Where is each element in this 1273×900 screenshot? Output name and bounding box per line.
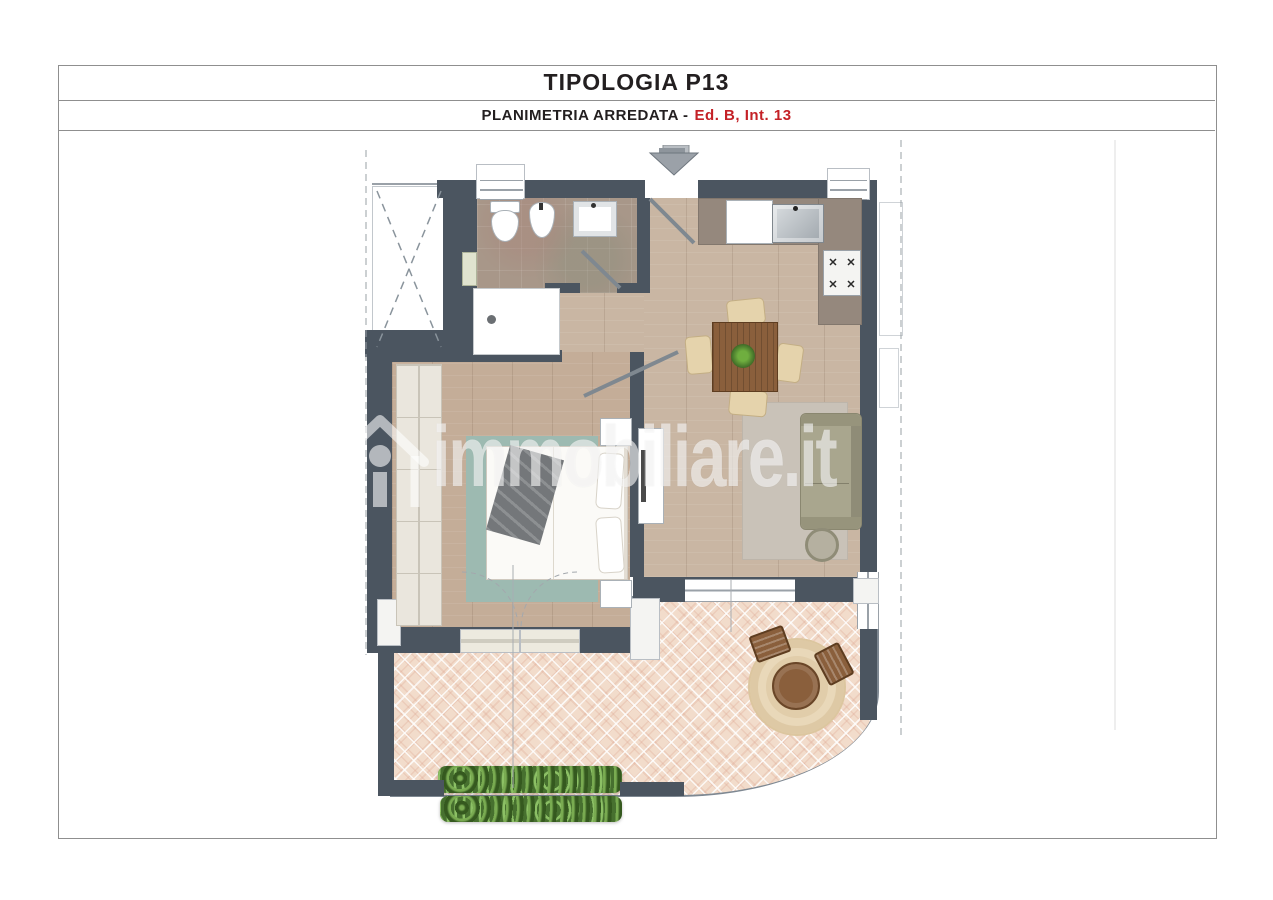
sink-tap-icon	[591, 203, 596, 208]
dining-chair	[684, 335, 713, 375]
planter-box	[440, 796, 622, 822]
burner-icon: ✕	[846, 278, 855, 291]
bedroom-french-door	[460, 629, 580, 653]
subtitle-unit: Ed. B, Int. 13	[695, 107, 792, 124]
bidet-tap-icon	[539, 203, 543, 210]
burner-icon: ✕	[846, 256, 855, 269]
wardrobe	[396, 364, 442, 626]
title-bar: TIPOLOGIA P13	[58, 65, 1215, 101]
living-french-door	[685, 579, 795, 602]
wall-terrace-bottom	[378, 780, 444, 796]
stove-burners: ✕ ✕ ✕ ✕	[824, 251, 860, 295]
hallway-floor	[558, 293, 644, 357]
burner-icon: ✕	[828, 278, 837, 291]
stairwell-door	[462, 252, 477, 286]
bed	[486, 446, 628, 580]
pillar	[853, 578, 879, 604]
sofa-cushion-line	[805, 483, 849, 484]
bathroom-window	[480, 180, 523, 200]
tv	[641, 450, 646, 502]
subtitle-label: PLANIMETRIA ARREDATA -	[481, 107, 688, 124]
nightstand	[600, 580, 632, 608]
table-plant	[731, 344, 755, 368]
sofa-back	[851, 426, 861, 517]
shower-tray	[473, 288, 560, 355]
dining-chair	[728, 388, 768, 417]
sofa-armrest	[801, 414, 861, 426]
stairwell	[372, 186, 445, 354]
burner-icon: ✕	[828, 256, 837, 269]
dining-chair	[773, 342, 804, 383]
kitchen-window	[830, 180, 867, 200]
sofa	[800, 413, 862, 530]
wall-right	[860, 198, 877, 577]
kitchen-sink	[772, 204, 824, 243]
nightstand	[600, 418, 632, 446]
terrace-coffee-table	[772, 662, 820, 710]
wall-bathroom-bottom	[617, 283, 637, 293]
page-title: TIPOLOGIA P13	[544, 69, 730, 96]
subtitle-bar: PLANIMETRIA ARREDATA - Ed. B, Int. 13	[58, 101, 1215, 131]
kitchen-cabinet	[726, 200, 773, 244]
wall-terrace-bottom	[620, 782, 684, 796]
wall-bedroom-left	[367, 352, 392, 630]
stove: ✕ ✕ ✕ ✕	[823, 250, 861, 296]
open-window-leaf	[879, 202, 903, 336]
wall-terrace-left	[378, 650, 394, 785]
bed-pillow	[595, 516, 625, 574]
pillar	[630, 598, 660, 660]
kitchen-faucet-icon	[793, 206, 798, 211]
sofa-armrest	[801, 517, 861, 529]
side-table	[805, 528, 839, 562]
shower-drain-icon	[487, 315, 496, 324]
wall-bathroom-right	[637, 198, 650, 293]
entrance-arrow-icon	[646, 145, 702, 177]
open-window-leaf	[879, 348, 899, 408]
bed-pillow	[595, 452, 625, 510]
entrance-opening	[645, 180, 698, 198]
planter-box	[438, 766, 622, 793]
floorplan-page: { "document": { "title": "TIPOLOGIA P13"…	[0, 0, 1273, 900]
